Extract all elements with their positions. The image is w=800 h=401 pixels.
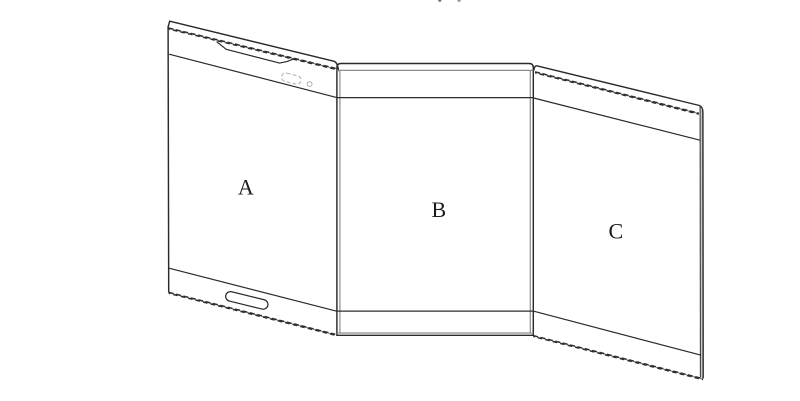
svg-text:B: B (431, 197, 446, 222)
svg-text:C: C (609, 219, 624, 244)
svg-text:A: A (238, 174, 254, 199)
